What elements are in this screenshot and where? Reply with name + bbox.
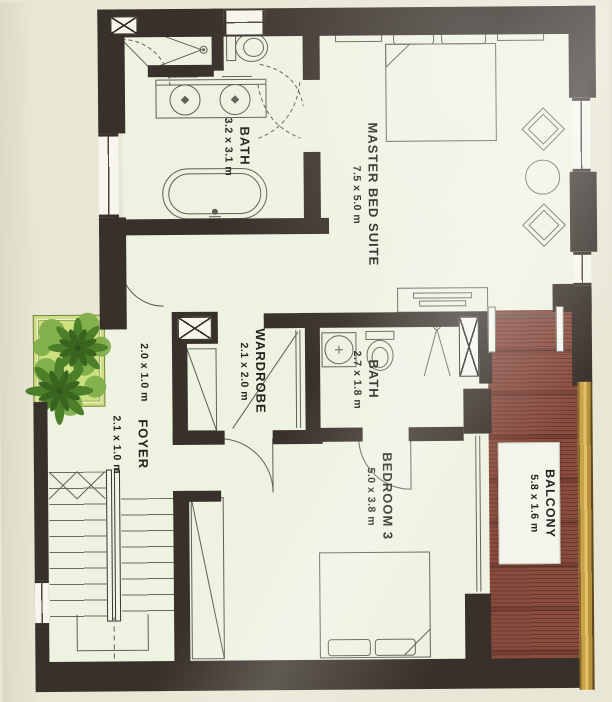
room-label-foyer: FOYER 2.1 x 1.0 m bbox=[80, 401, 151, 488]
floor-plan: BATH 3.2 x 3.1 m MASTER BED SUITE 7.5 x … bbox=[0, 0, 612, 702]
room-label-bath-main: BATH 3.2 x 3.1 m bbox=[200, 104, 253, 188]
planter-dims-label: 2.0 x 1.0 m bbox=[126, 333, 151, 411]
room-dims: 2.1 x 1.0 m bbox=[110, 401, 123, 487]
room-name: FOYER bbox=[135, 401, 151, 487]
room-label-balcony: BALCONY 5.8 x 1.6 m bbox=[501, 445, 558, 561]
room-dims: 2.0 x 1.0 m bbox=[138, 333, 151, 411]
room-name: WARDROBE bbox=[253, 314, 269, 428]
room-dims: 5.8 x 1.6 m bbox=[528, 445, 541, 561]
room-name: BATH bbox=[237, 104, 253, 188]
room-name: MASTER BED SUITE bbox=[365, 99, 381, 289]
room-label-bedroom3: BEDROOM 3 5.0 x 3.8 m bbox=[339, 435, 396, 557]
room-name: BEDROOM 3 bbox=[380, 435, 396, 557]
room-label-master-suite: MASTER BED SUITE 7.5 x 5.0 m bbox=[324, 99, 381, 289]
room-dims: 2.7 x 1.8 m bbox=[351, 340, 364, 420]
room-name: BALCONY bbox=[543, 445, 558, 561]
room-dims: 2.1 x 2.0 m bbox=[238, 314, 251, 428]
room-dims: 7.5 x 5.0 m bbox=[350, 100, 363, 290]
room-dims: 3.2 x 3.1 m bbox=[222, 105, 235, 189]
room-label-wardrobe: WARDROBE 2.1 x 2.0 m bbox=[216, 314, 269, 428]
room-label-bath-ensuite: BATH 2.7 x 1.8 m bbox=[331, 339, 382, 419]
balcony-label-box: BALCONY 5.8 x 1.6 m bbox=[498, 442, 561, 564]
floor-plan-scan: BATH 3.2 x 3.1 m MASTER BED SUITE 7.5 x … bbox=[0, 0, 612, 702]
labels-layer: BATH 3.2 x 3.1 m MASTER BED SUITE 7.5 x … bbox=[0, 0, 612, 702]
room-dims: 5.0 x 3.8 m bbox=[365, 435, 378, 557]
room-name: BATH bbox=[366, 339, 382, 419]
